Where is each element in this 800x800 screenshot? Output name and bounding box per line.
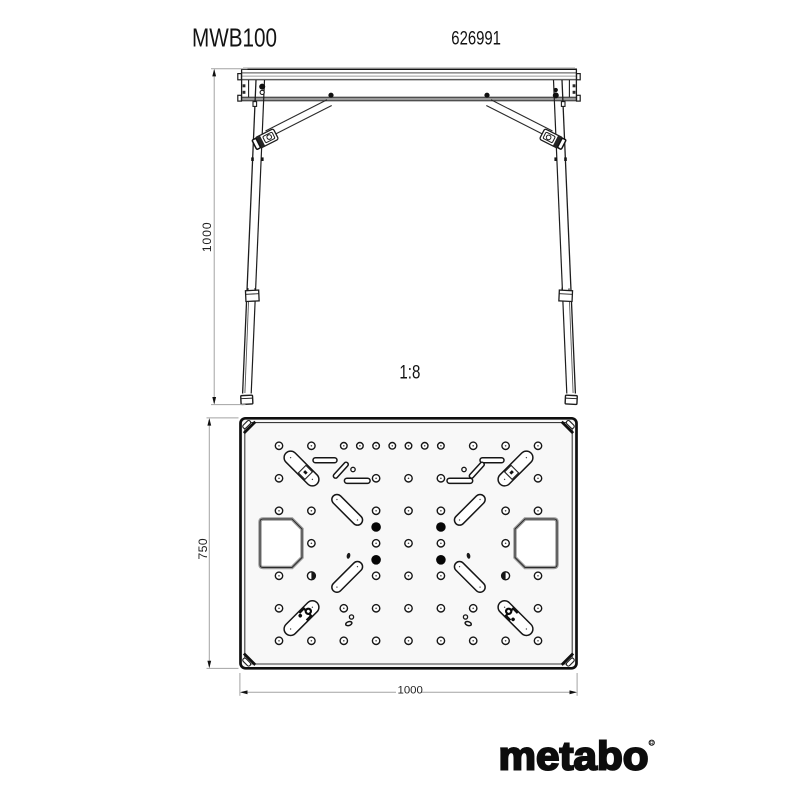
svg-text:1000: 1000 <box>200 222 214 253</box>
svg-text:1:8: 1:8 <box>399 360 420 383</box>
svg-text:MWB100: MWB100 <box>192 24 277 53</box>
svg-text:626991: 626991 <box>451 27 501 50</box>
svg-text:1000: 1000 <box>398 684 423 696</box>
svg-text:750: 750 <box>196 538 210 560</box>
svg-text:R: R <box>650 741 654 747</box>
svg-text:metabo: metabo <box>499 735 649 779</box>
